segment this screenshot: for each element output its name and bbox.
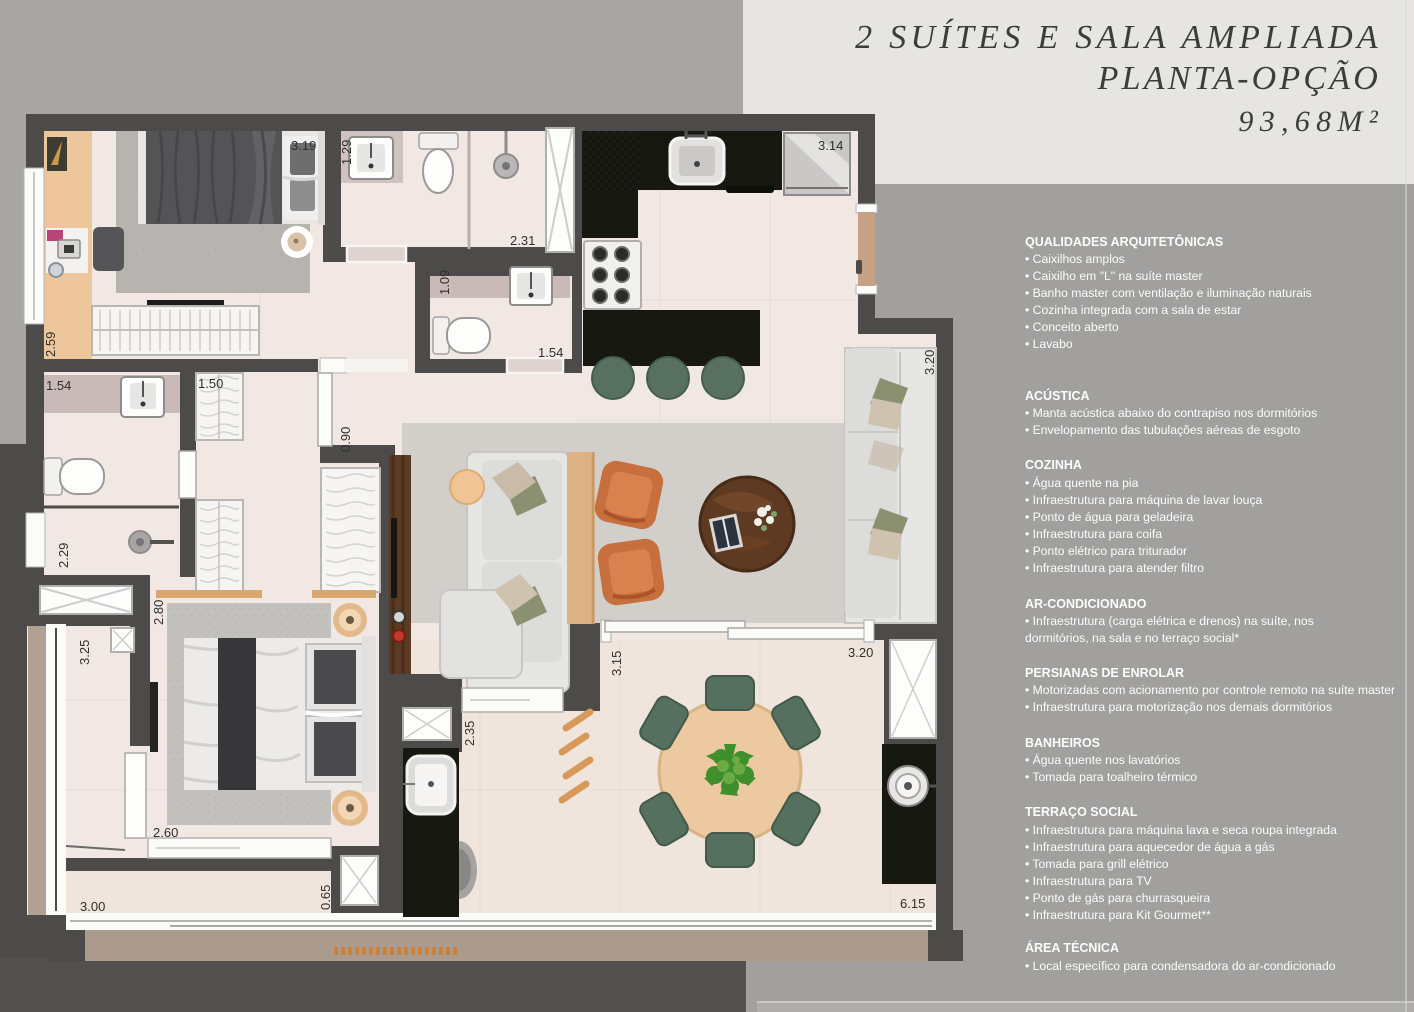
svg-text:• Infraestrutura para máquina: • Infraestrutura para máquina lava e sec… bbox=[1025, 823, 1337, 837]
svg-text:0.90: 0.90 bbox=[338, 427, 353, 452]
svg-text:• Infraestrutura para coifa: • Infraestrutura para coifa bbox=[1025, 527, 1162, 541]
svg-text:• Água quente nos lavatórios: • Água quente nos lavatórios bbox=[1025, 752, 1180, 767]
svg-text:• Caixilho em "L" na suíte mas: • Caixilho em "L" na suíte master bbox=[1025, 269, 1203, 283]
svg-text:• Infraestrutura (carga elétri: • Infraestrutura (carga elétrica e dreno… bbox=[1025, 614, 1314, 628]
svg-text:1.09: 1.09 bbox=[437, 270, 452, 295]
svg-text:• Infraestrutura para aquecedo: • Infraestrutura para aquecedor de água … bbox=[1025, 840, 1275, 854]
svg-text:3.20: 3.20 bbox=[848, 645, 873, 660]
svg-text:3.20: 3.20 bbox=[922, 350, 937, 375]
svg-text:2.31: 2.31 bbox=[510, 233, 535, 248]
svg-text:2.29: 2.29 bbox=[56, 543, 71, 568]
svg-text:• Motorizadas com acionamento: • Motorizadas com acionamento por contro… bbox=[1025, 683, 1395, 697]
svg-text:• Manta acústica abaixo do con: • Manta acústica abaixo do contrapiso no… bbox=[1025, 406, 1317, 420]
svg-text:• Infraestrutura para atender: • Infraestrutura para atender filtro bbox=[1025, 561, 1204, 575]
svg-text:• Infraestrutura para motoriza: • Infraestrutura para motorização nos de… bbox=[1025, 700, 1332, 714]
svg-text:dormitórios, na sala e no terr: dormitórios, na sala e no terraço social… bbox=[1025, 631, 1239, 645]
svg-text:ACÚSTICA: ACÚSTICA bbox=[1025, 388, 1090, 403]
svg-text:• Cozinha integrada com a sala: • Cozinha integrada com a sala de estar bbox=[1025, 303, 1241, 317]
svg-text:AR-CONDICIONADO: AR-CONDICIONADO bbox=[1025, 597, 1147, 611]
svg-text:• Infraestrutura para máquina: • Infraestrutura para máquina de lavar l… bbox=[1025, 493, 1263, 507]
svg-text:3.25: 3.25 bbox=[77, 640, 92, 665]
svg-text:3.15: 3.15 bbox=[609, 651, 624, 676]
svg-text:6.15: 6.15 bbox=[900, 896, 925, 911]
svg-text:• Infraestrutura para Kit Gour: • Infraestrutura para Kit Gourmet** bbox=[1025, 908, 1211, 922]
svg-text:2.59: 2.59 bbox=[43, 332, 58, 357]
svg-text:• Ponto de gás para churrasque: • Ponto de gás para churrasqueira bbox=[1025, 891, 1210, 905]
svg-text:2 SUÍTES E SALA AMPLIADA: 2 SUÍTES E SALA AMPLIADA bbox=[855, 19, 1382, 56]
svg-text:• Água quente na pia: • Água quente na pia bbox=[1025, 475, 1139, 490]
svg-text:• Caixilhos amplos: • Caixilhos amplos bbox=[1025, 252, 1125, 266]
svg-text:• Local específico para conden: • Local específico para condensadora do … bbox=[1025, 959, 1336, 973]
svg-text:• Tomada para grill elétrico: • Tomada para grill elétrico bbox=[1025, 857, 1169, 871]
svg-text:3.00: 3.00 bbox=[80, 899, 105, 914]
svg-text:QUALIDADES ARQUITETÔNICAS: QUALIDADES ARQUITETÔNICAS bbox=[1025, 234, 1223, 249]
svg-text:ÁREA TÉCNICA: ÁREA TÉCNICA bbox=[1025, 940, 1119, 955]
svg-text:PLANTA-OPÇÃO: PLANTA-OPÇÃO bbox=[1097, 60, 1381, 97]
svg-text:1.50: 1.50 bbox=[198, 376, 223, 391]
svg-text:• Lavabo: • Lavabo bbox=[1025, 337, 1073, 351]
svg-text:COZINHA: COZINHA bbox=[1025, 458, 1082, 472]
svg-text:2.35: 2.35 bbox=[462, 721, 477, 746]
svg-text:1.29: 1.29 bbox=[339, 140, 354, 165]
svg-text:1.54: 1.54 bbox=[46, 378, 71, 393]
svg-text:2.60: 2.60 bbox=[153, 825, 178, 840]
svg-text:• Ponto de água para geladeira: • Ponto de água para geladeira bbox=[1025, 510, 1193, 524]
svg-text:1.54: 1.54 bbox=[538, 345, 563, 360]
svg-text:• Infraestrutura para TV: • Infraestrutura para TV bbox=[1025, 874, 1153, 888]
svg-text:• Conceito aberto: • Conceito aberto bbox=[1025, 320, 1119, 334]
svg-text:93,68M²: 93,68M² bbox=[1238, 105, 1384, 138]
svg-text:• Tomada para toalheiro térmic: • Tomada para toalheiro térmico bbox=[1025, 770, 1197, 784]
svg-text:0.65: 0.65 bbox=[318, 885, 333, 910]
svg-text:3.14: 3.14 bbox=[818, 138, 843, 153]
svg-text:2.80: 2.80 bbox=[151, 600, 166, 625]
svg-text:3.19: 3.19 bbox=[291, 138, 316, 153]
svg-text:TERRAÇO SOCIAL: TERRAÇO SOCIAL bbox=[1025, 805, 1138, 819]
svg-text:• Ponto elétrico para triturad: • Ponto elétrico para triturador bbox=[1025, 544, 1187, 558]
svg-text:• Envelopamento das tubulações: • Envelopamento das tubulações aéreas de… bbox=[1025, 423, 1301, 437]
svg-text:BANHEIROS: BANHEIROS bbox=[1025, 736, 1100, 750]
svg-text:PERSIANAS DE ENROLAR: PERSIANAS DE ENROLAR bbox=[1025, 666, 1184, 680]
svg-text:• Banho master com ventilação: • Banho master com ventilação e iluminaç… bbox=[1025, 286, 1312, 300]
